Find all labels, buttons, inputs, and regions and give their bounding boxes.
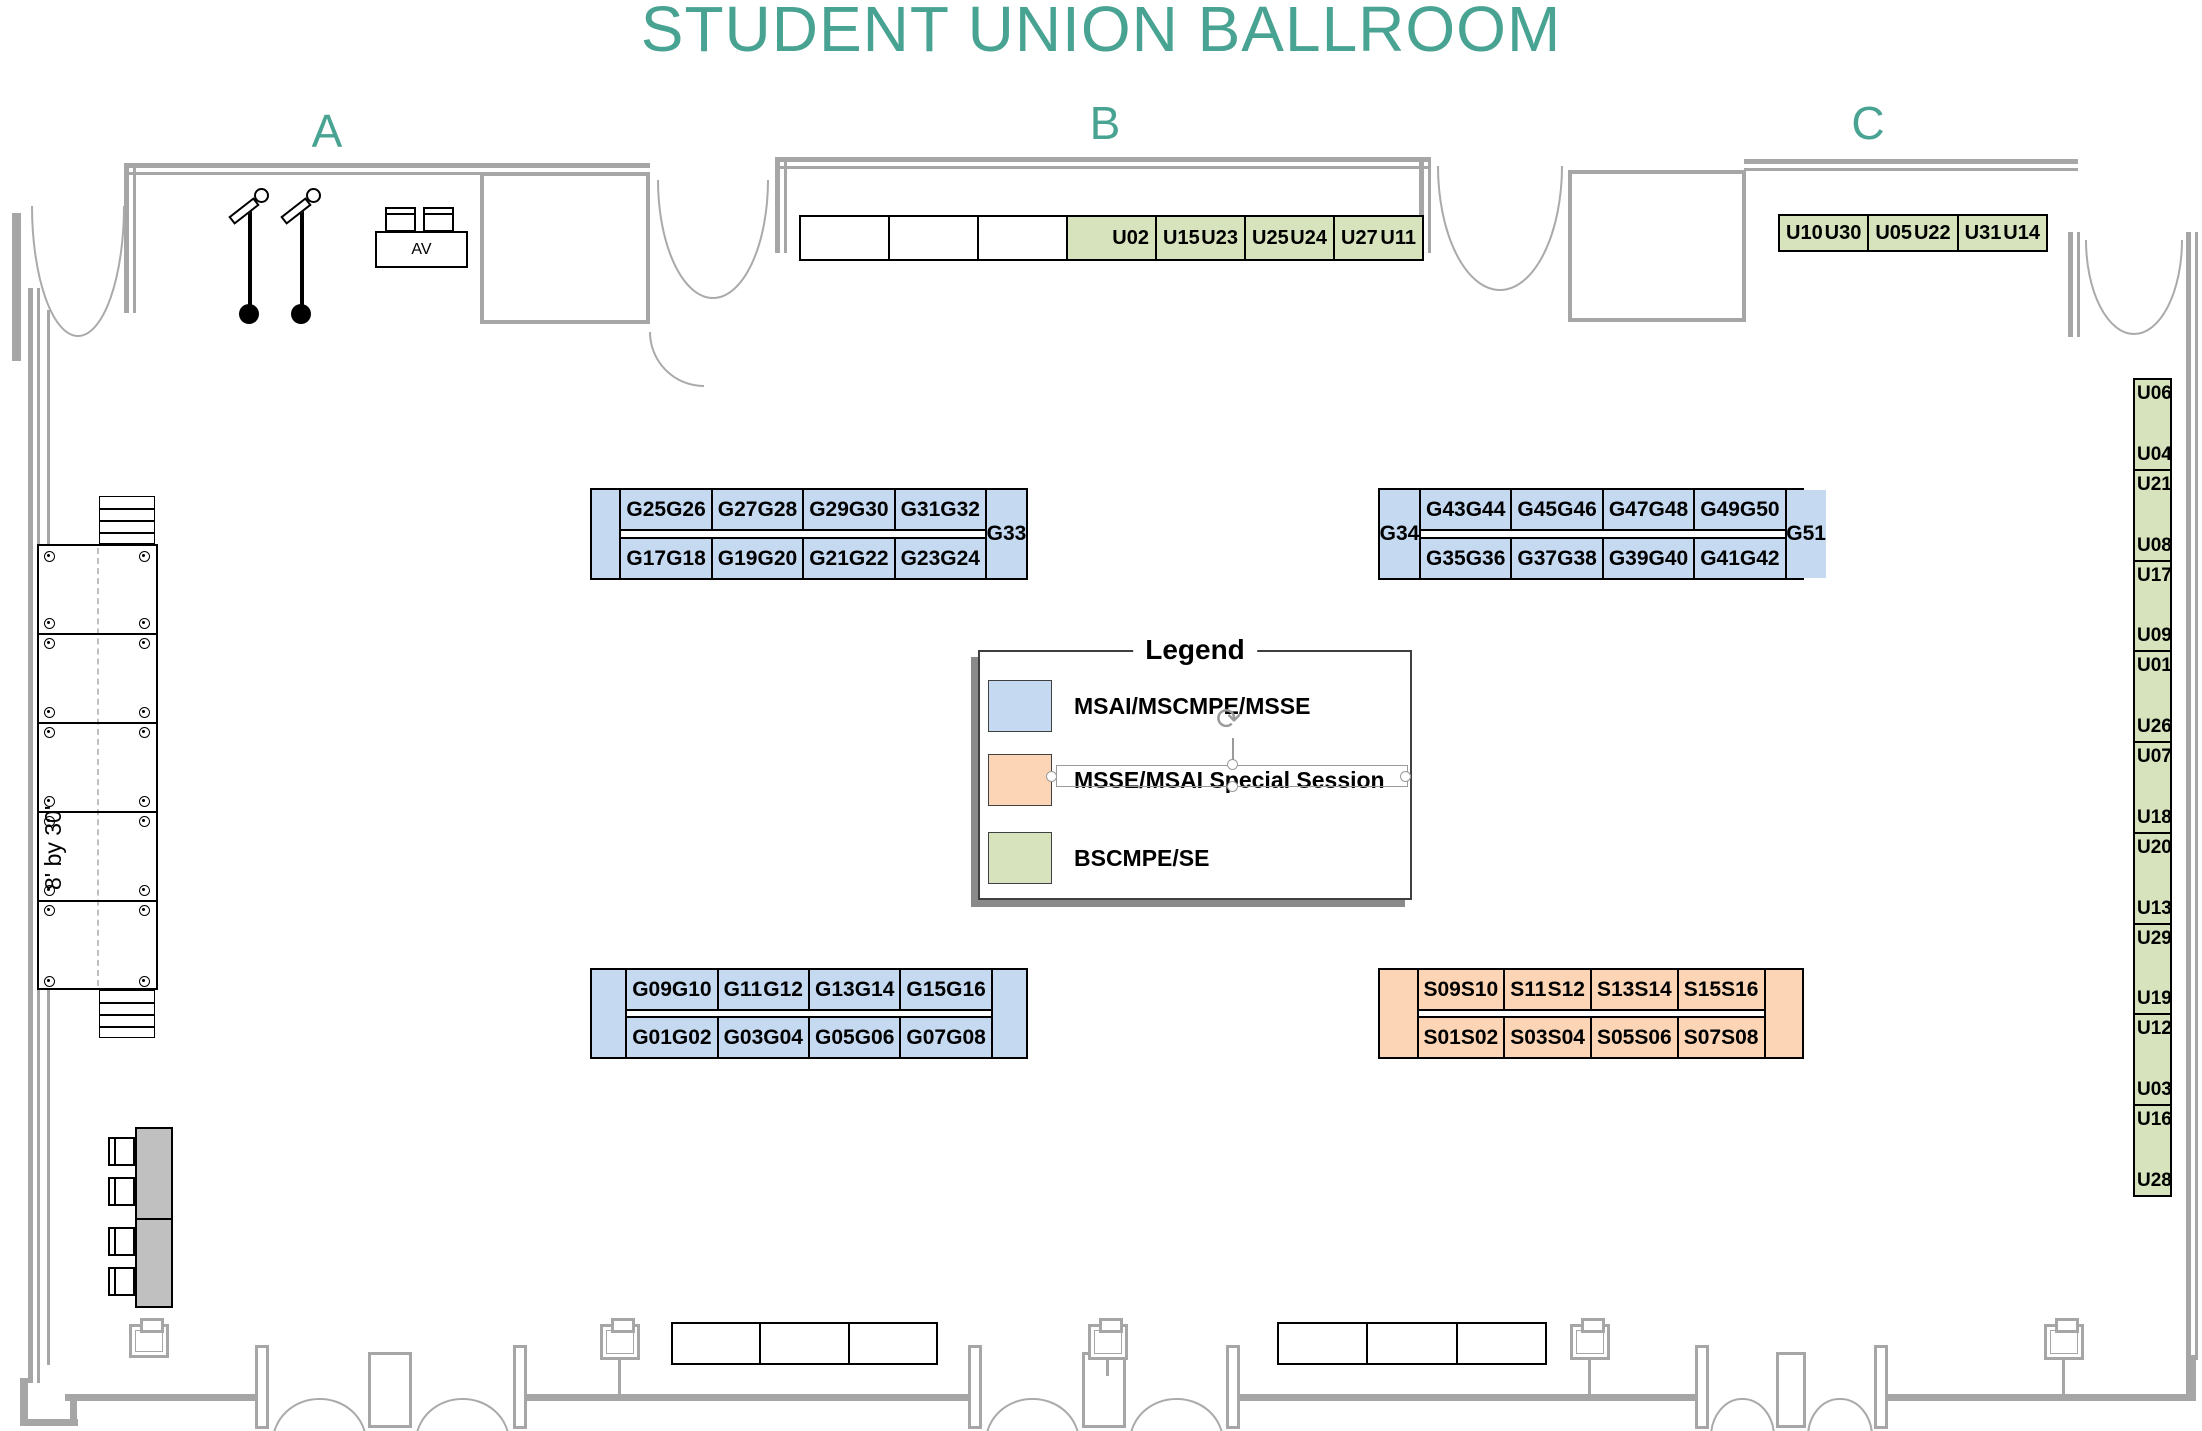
booth-cell[interactable]: G11G12: [717, 970, 808, 1009]
chair: [108, 1227, 135, 1256]
screw-icon: [139, 796, 150, 807]
screw-icon: [139, 707, 150, 718]
screw-icon: [139, 885, 150, 896]
legend-swatch-blue: [988, 680, 1052, 732]
door-post: [1226, 1345, 1240, 1429]
door-leaf-alcove-a: [648, 330, 706, 388]
booth-cell[interactable]: G03G04: [717, 1018, 808, 1057]
booth-cell[interactable]: G15G16: [899, 970, 990, 1009]
screw-icon: [139, 816, 150, 827]
legend-title: Legend: [1133, 634, 1257, 666]
booth-cell[interactable]: U10U30: [1780, 216, 1867, 250]
fixture-stem: [618, 1360, 621, 1394]
fixture-stem: [1106, 1360, 1109, 1376]
resize-handle-bottom[interactable]: [1227, 781, 1238, 792]
booth-cell[interactable]: G47G48: [1602, 490, 1693, 529]
booth-cell[interactable]: U16U28: [2135, 1104, 2170, 1195]
wall-right: [2186, 232, 2198, 1360]
wall-fixture: [600, 1324, 640, 1360]
door-post: [513, 1345, 527, 1429]
wall-bottom: [527, 1394, 968, 1401]
table-block-upper-right: G34 G43G44 G45G46 G47G48 G49G50 G35G36 G…: [1378, 488, 1804, 580]
double-door-bottom: [414, 1397, 511, 1431]
booth-cell[interactable]: S15S16: [1677, 970, 1764, 1009]
door-post: [368, 1352, 412, 1428]
booth-cell[interactable]: G27G28: [711, 490, 802, 529]
screw-icon: [44, 976, 55, 987]
stage-centerline: [97, 548, 99, 986]
mic-head-icon: [306, 188, 321, 203]
booth-cell[interactable]: G23G24: [894, 539, 985, 578]
booth-cell[interactable]: G39G40: [1602, 539, 1693, 578]
double-door-top-right: [2084, 240, 2184, 336]
av-chair: [423, 207, 454, 232]
chair: [108, 1137, 135, 1166]
bottom-table: [671, 1322, 938, 1365]
double-door-bottom: [1806, 1397, 1874, 1431]
booth-cell[interactable]: G05G06: [808, 1018, 899, 1057]
bottom-table: [1277, 1322, 1547, 1365]
booth-cell[interactable]: G41G42: [1693, 539, 1784, 578]
screw-icon: [44, 905, 55, 916]
booth-cell[interactable]: U02: [1066, 217, 1155, 259]
table-row-c: U10U30 U05U22 U31U14: [1778, 214, 2048, 252]
booth-cell[interactable]: [977, 217, 1066, 259]
booth-cell[interactable]: G31G32: [894, 490, 985, 529]
booth-cell[interactable]: U05U22: [1867, 216, 1956, 250]
screw-icon: [44, 551, 55, 562]
block-endcap[interactable]: [592, 970, 625, 1057]
wall-fixture: [1570, 1324, 1610, 1360]
booth-cell[interactable]: G37G38: [1510, 539, 1601, 578]
section-label-c: C: [1833, 96, 1903, 150]
booth-cell[interactable]: U15U23: [1155, 217, 1244, 259]
screw-icon: [44, 638, 55, 649]
legend-swatch-green: [988, 832, 1052, 884]
booth-cell[interactable]: U25U24: [1244, 217, 1333, 259]
double-door-a-b: [656, 180, 770, 300]
table-block-lower-right: S09S10 S11S12 S13S14 S15S16 S01S02 S03S0…: [1378, 968, 1804, 1059]
block-endcap[interactable]: G34: [1380, 490, 1419, 578]
av-table-label: AV: [411, 241, 431, 259]
fixture-stem: [1588, 1360, 1591, 1394]
booth-cell[interactable]: G19G20: [711, 539, 802, 578]
page-title: STUDENT UNION BALLROOM: [0, 0, 2202, 66]
booth-cell[interactable]: S09S10: [1419, 970, 1504, 1009]
chair: [108, 1267, 135, 1296]
alcove-c: [1568, 170, 1746, 322]
mic-arm-icon: [228, 197, 259, 225]
booth-cell[interactable]: U20U13: [2135, 832, 2170, 923]
wall-corner: [2186, 1355, 2196, 1401]
stage-steps-bottom: [99, 990, 155, 1038]
legend-label: MSAI/MSCMPE/MSSE: [1074, 693, 1310, 720]
av-chair: [385, 207, 416, 232]
screw-icon: [139, 551, 150, 562]
booth-cell[interactable]: U17U09: [2135, 560, 2170, 651]
booth-cell[interactable]: S11S12: [1503, 970, 1590, 1009]
booth-cell[interactable]: S07S08: [1677, 1018, 1764, 1057]
booth-cell[interactable]: G09G10: [627, 970, 716, 1009]
double-door-bottom: [1128, 1397, 1225, 1431]
wall-bottom: [1240, 1394, 1695, 1401]
screw-icon: [139, 905, 150, 916]
double-door-bottom: [271, 1397, 368, 1431]
booth-cell[interactable]: U21U08: [2135, 469, 2170, 560]
screw-icon: [139, 727, 150, 738]
double-door-bottom: [984, 1397, 1081, 1431]
door-post: [1874, 1345, 1888, 1429]
wall-fixture: [2044, 1324, 2084, 1360]
wall-corner: [20, 1378, 28, 1425]
booth-cell[interactable]: G29G30: [802, 490, 893, 529]
screw-icon: [139, 976, 150, 987]
booth-cell[interactable]: G17G18: [621, 539, 710, 578]
booth-cell[interactable]: G13G14: [808, 970, 899, 1009]
booth-cell[interactable]: G25G26: [621, 490, 710, 529]
wall-segment-top-b: [775, 157, 1430, 169]
wall-bottom: [65, 1394, 257, 1401]
booth-cell[interactable]: S05S06: [1590, 1018, 1677, 1057]
booth-cell[interactable]: U27U11: [1333, 217, 1422, 259]
wall-stub: [12, 213, 21, 361]
legend-swatch-orange: [988, 754, 1052, 806]
booth-cell[interactable]: U06U04: [2135, 380, 2170, 469]
section-label-b: B: [1070, 96, 1140, 150]
block-endcap[interactable]: [991, 970, 1026, 1057]
wall-fixture: [1088, 1324, 1128, 1360]
booth-cell[interactable]: G21G22: [802, 539, 893, 578]
wall-fixture: [129, 1324, 169, 1358]
section-label-a: A: [292, 104, 362, 158]
microphone-stand: [274, 192, 334, 332]
booth-cell[interactable]: [888, 217, 977, 259]
resize-handle-right[interactable]: [1400, 771, 1411, 782]
rotate-handle-icon[interactable]: ⟳: [1216, 706, 1241, 734]
block-endcap[interactable]: [1380, 970, 1417, 1057]
block-endcap[interactable]: G51: [1785, 490, 1826, 578]
double-door-top-left: [30, 206, 126, 338]
door-post: [1695, 1345, 1709, 1429]
block-endcap[interactable]: [592, 490, 619, 578]
door-post: [1776, 1352, 1806, 1428]
mic-arm-icon: [280, 197, 311, 225]
wall-segment-top-c: [1744, 159, 2078, 171]
microphone-stand: [222, 192, 282, 332]
booth-cell[interactable]: G45G46: [1510, 490, 1601, 529]
table-block-upper-left: G25G26 G27G28 G29G30 G31G32 G17G18 G19G2…: [590, 488, 1028, 580]
booth-cell[interactable]: S13S14: [1590, 970, 1677, 1009]
mic-base-icon: [239, 304, 259, 324]
booth-cell[interactable]: G35G36: [1421, 539, 1510, 578]
stage-size-label: 8' by 30': [40, 680, 67, 890]
booth-cell[interactable]: [801, 217, 888, 259]
ballroom-floor-plan: STUDENT UNION BALLROOM A B C: [0, 0, 2202, 1431]
booth-cell[interactable]: S03S04: [1503, 1018, 1590, 1057]
wall-corner: [70, 1394, 77, 1426]
wall-jamb: [2068, 232, 2080, 337]
door-post: [1082, 1352, 1126, 1428]
chair: [108, 1177, 135, 1206]
mic-base-icon: [291, 304, 311, 324]
booth-cell[interactable]: G49G50: [1693, 490, 1784, 529]
booth-cell[interactable]: G43G44: [1421, 490, 1510, 529]
booth-cell[interactable]: S01S02: [1419, 1018, 1504, 1057]
resize-handle-top[interactable]: [1227, 759, 1238, 770]
booth-cell[interactable]: U31U14: [1957, 216, 2046, 250]
screw-icon: [139, 618, 150, 629]
mic-head-icon: [254, 188, 269, 203]
booth-cell[interactable]: G07G08: [899, 1018, 990, 1057]
booth-cell[interactable]: U07U18: [2135, 741, 2170, 832]
wall-jamb: [775, 157, 787, 253]
double-door-b-c: [1436, 166, 1564, 292]
booth-cell[interactable]: U01U26: [2135, 650, 2170, 741]
alcove-a: [480, 172, 650, 324]
door-post: [968, 1345, 982, 1429]
gray-table-pair: [135, 1127, 173, 1308]
legend-label: BSCMPE/SE: [1074, 845, 1209, 872]
booth-cell[interactable]: U12U03: [2135, 1013, 2170, 1104]
fixture-stem: [2062, 1360, 2065, 1394]
table-row-b: U02 U15U23 U25U24 U27U11: [799, 215, 1424, 261]
table-column-right: U06U04 U21U08 U17U09 U01U26 U07U18 U20U1…: [2133, 378, 2172, 1197]
door-post: [255, 1345, 269, 1429]
stage-steps-top: [99, 496, 155, 544]
table-block-lower-left: G09G10 G11G12 G13G14 G15G16 G01G02 G03G0…: [590, 968, 1028, 1059]
screw-icon: [44, 618, 55, 629]
resize-handle-left[interactable]: [1046, 771, 1057, 782]
block-endcap[interactable]: [1764, 970, 1803, 1057]
av-table: AV: [375, 231, 468, 268]
booth-cell[interactable]: G01G02: [627, 1018, 716, 1057]
double-door-bottom: [1709, 1397, 1776, 1431]
wall-bottom: [1888, 1394, 2193, 1401]
booth-cell[interactable]: U29U19: [2135, 923, 2170, 1014]
block-endcap[interactable]: G33: [985, 490, 1026, 578]
screw-icon: [139, 638, 150, 649]
